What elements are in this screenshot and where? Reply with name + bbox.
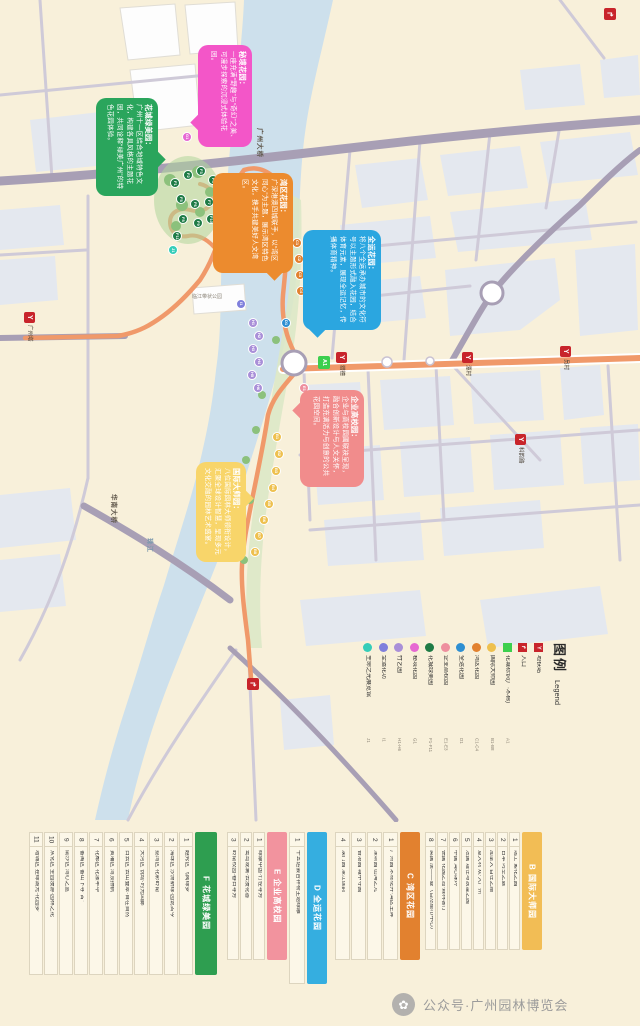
table-row: 2鹭岛观澜·云漫花香 xyxy=(240,832,252,960)
metro-icon: Y xyxy=(336,352,347,363)
legend-title: 图例 Legend xyxy=(550,643,570,775)
table-row: 1广州园 木棉花开·湾区生辉 xyxy=(383,832,398,960)
legend-item-code: J1 xyxy=(366,738,371,743)
legend-item-code: I1 xyxy=(381,738,386,742)
entrance-icon: ↱ xyxy=(604,8,616,20)
legend-item: 湾区花园 C1-C4 xyxy=(469,643,485,775)
callout-title: 全运花园： xyxy=(366,236,376,322)
legend-color-icon xyxy=(487,643,496,652)
legend-item: 竹艺园 H1-H6 xyxy=(391,643,407,775)
legend-item-label: 全运花坊 xyxy=(380,655,386,737)
footer-account-text: 公众号·广州园林博览会 xyxy=(423,995,568,1014)
callout-enterprise-campus-garden: 企业高校园：企业与高校园圃联袂呈现，融合创新设计与人文关怀，打造充满活力与创意的… xyxy=(300,390,364,487)
legend-color-icon: ↱ xyxy=(518,643,527,652)
garden-marker: H4 xyxy=(254,357,264,367)
legend-title-zh: 图例 xyxy=(552,643,567,673)
legend-item-code: A1 xyxy=(505,738,510,744)
legend-item-label: 国际大师园 xyxy=(489,655,495,737)
table-row: 1十五运会吉祥物主题绿雕 xyxy=(289,832,305,984)
legend-item-label: 入口 xyxy=(520,655,526,737)
garden-marker: F9 xyxy=(193,218,203,228)
callout-title: 国际大师园： xyxy=(231,468,241,554)
callout-body: 广深港澳四城联手，以“湾区同心”为主题，展示湾区特色文化，携手共建美好人文湾区。 xyxy=(242,179,278,262)
callout-title: 花城绿美园： xyxy=(143,104,153,188)
expo-map-page: 广州大桥珠江华南大桥临江带状公园 F1F2F3F4F5F6F7F8F9F10F1… xyxy=(0,0,640,1026)
garden-marker: I1 xyxy=(236,299,246,309)
metro-station-label: 员村 xyxy=(562,359,568,370)
table-row: 6黄埔区 湾顶扬帆 xyxy=(104,832,118,975)
table-row: 10从化区 全园漫游·园林之花 xyxy=(44,832,58,975)
table-row: 2深圳园 山海之光 xyxy=(367,832,382,960)
garden-marker: H5 xyxy=(247,370,257,380)
table-row: 1瑞士 繁花之园 xyxy=(509,832,520,950)
garden-marker: B8 xyxy=(250,547,260,557)
entrance-icon: ↱ xyxy=(247,678,259,690)
legend-item-label: 企业高校园 xyxy=(442,655,448,737)
legend-title-en: Legend xyxy=(553,680,562,705)
legend-item: 企业高校园 E1-E3 xyxy=(438,643,454,775)
legend-color-icon xyxy=(363,643,372,652)
table-header: E 企业高校园 xyxy=(267,832,287,960)
table-bay-area-gardens: C 湾区花园 1广州园 木棉花开·湾区生辉2深圳园 山海之光3香港园 城中寻园4… xyxy=(334,832,420,960)
table-green-beauty-gardens: F 花城绿美园 1越秀区 飞阅绿梦2海珠区 沙洲新绿·园说古今3荔湾区 花影岭南… xyxy=(28,832,217,975)
metro-station: Y 员村 xyxy=(560,346,572,370)
legend-item: 全运花园 D1 xyxy=(453,643,469,775)
table-header: B 国际大师园 xyxy=(522,832,542,950)
callout-title: 秘境花园： xyxy=(237,51,247,139)
metro-icon: Y xyxy=(560,346,571,357)
legend-item-code: F1-F11 xyxy=(428,738,433,752)
callout-title: 湾区花园： xyxy=(278,179,288,265)
legend-color-icon xyxy=(456,643,465,652)
legend-item-label: 全运花园 xyxy=(458,655,464,737)
legend-item-label: 花城标识(广·木棉) xyxy=(504,655,510,737)
legend-color-icon xyxy=(472,643,481,652)
legend-item-code: E1-E3 xyxy=(443,738,448,751)
metro-station-label: 广州塔 xyxy=(26,325,32,342)
legend-item: 花城标识(广·木棉) A1 xyxy=(500,643,516,775)
legend-item-label: 竹艺园 xyxy=(396,655,402,737)
a1-landmark-badge: A1 xyxy=(318,356,330,369)
legend-item-code: D1 xyxy=(459,738,464,744)
callout-bay-area-garden: 湾区花园：广深港澳四城联手，以“湾区同心”为主题，展示湾区特色文化，携手共建美好… xyxy=(213,173,293,273)
legend-color-icon xyxy=(394,643,403,652)
garden-marker: H2 xyxy=(254,331,264,341)
garden-marker: F1 xyxy=(170,178,180,188)
table-row: 1绿康中国·竹径寻芳 xyxy=(253,832,265,960)
table-row: 11增城区 挂绿湖光·花园梦 xyxy=(29,832,43,975)
garden-marker: B5 xyxy=(264,499,274,509)
legend-color-icon xyxy=(503,643,512,652)
table-header: D 全运花园 xyxy=(307,832,327,984)
metro-station-label: 猎德 xyxy=(338,365,344,376)
garden-marker: B4 xyxy=(268,483,278,493)
garden-marker: B3 xyxy=(271,466,281,476)
table-row: 9南沙区 湾心之蓝 xyxy=(59,832,73,975)
map-label: 珠江 xyxy=(146,538,156,553)
legend-item-code: C1-C4 xyxy=(474,738,479,751)
legend-color-icon: Y xyxy=(534,643,543,652)
garden-marker: B7 xyxy=(254,531,264,541)
table-international-masters: B 国际大师园 1瑞士 繁花之园2日本 时空之庭3加拿大 自在之路4意大利 欢·… xyxy=(424,832,542,950)
table-row: 4澳门园 濠江莲韵 xyxy=(335,832,350,960)
legend-item-label: 花城绿美园 xyxy=(427,655,433,737)
table-row: 5法国 理性与浪漫之园 xyxy=(461,832,472,950)
wechat-account-logo-icon: ✿ xyxy=(392,993,415,1016)
table-row: 4天河区 悦动·时光回廊 xyxy=(134,832,148,975)
legend-color-icon xyxy=(425,643,434,652)
callout-national-games-garden: 全运花园：将八个全运承办城市的文化符号以主题形式融入花园，结合体育元素，展现全运… xyxy=(303,230,381,330)
map-label: 华南大桥 xyxy=(110,494,120,524)
callout-title: 企业高校园： xyxy=(349,396,359,479)
legend-color-icon xyxy=(379,643,388,652)
legend-item: 花城绿美园 F1-F11 xyxy=(422,643,438,775)
legend-item: 生命之光展览馆 J1 xyxy=(360,643,376,775)
table-header: C 湾区花园 xyxy=(400,832,420,960)
garden-marker: B2 xyxy=(274,449,284,459)
legend-item-label: 湾区花园 xyxy=(473,655,479,737)
table-row: 4意大利 欢·入广州 xyxy=(473,832,484,950)
metro-icon: Y xyxy=(462,352,473,363)
legend-item: 秘境花园 G1 xyxy=(407,643,423,775)
garden-marker: F11 xyxy=(172,231,182,241)
table-row: 7德国 花园之岛·森林客厅 xyxy=(437,832,448,950)
garden-marker: H3 xyxy=(248,344,258,354)
garden-marker: D1 xyxy=(281,318,291,328)
table-header: F 花城绿美园 xyxy=(195,832,217,975)
garden-marker: J1 xyxy=(168,245,178,255)
legend-item: 全运花坊 I1 xyxy=(376,643,392,775)
table-national-games-garden: D 全运花园 1十五运会吉祥物主题绿雕 xyxy=(288,832,327,984)
legend-item: Y 地铁站 xyxy=(531,643,547,775)
garden-marker: H1 xyxy=(248,318,258,328)
metro-station: Y 科韵路 xyxy=(515,434,527,464)
legend-item-code: H1-H6 xyxy=(397,738,402,751)
metro-icon: Y xyxy=(24,312,35,323)
callout-body: 一座充满“野趣”与“奇幻”之美、可漫步探索的沉浸式体验花园。 xyxy=(210,51,236,141)
garden-marker: B1 xyxy=(272,432,282,442)
legend-color-icon xyxy=(441,643,450,652)
callout-international-masters-garden: 国际大师园：八位国际园林大师领衔设计，汇聚全球设计智慧，呈现多元文化交融的园林艺… xyxy=(196,462,246,562)
metro-station: Y 潭村 xyxy=(462,352,474,376)
garden-marker: H6 xyxy=(253,383,263,393)
table-row: 8英国 唐——曼（自然都市中心） xyxy=(425,832,436,950)
table-row: 2日本 时空之庭 xyxy=(497,832,508,950)
garden-marker: B6 xyxy=(259,515,269,525)
table-row: 3荔湾区 花影岭南 xyxy=(149,832,163,975)
legend-item-label: 地铁站 xyxy=(535,655,541,737)
legend-item-code: B1-B8 xyxy=(490,738,495,751)
table-row: 5白云区 云山叠翠·自在自然 xyxy=(119,832,133,975)
callout-body: 八位国际园林大师领衔设计，汇聚全球设计智慧，呈现多元文化交融的园林艺术盛宴。 xyxy=(204,468,230,555)
table-row: 1越秀区 飞阅绿梦 xyxy=(179,832,193,975)
callout-body: 将八个全运承办城市的文化符号以主题形式融入花园，结合体育元素，展现全运记忆，传播… xyxy=(330,236,366,323)
garden-marker: F3 xyxy=(196,166,206,176)
garden-marker: F8 xyxy=(178,214,188,224)
callout-body: 企业与高校园圃联袂呈现，融合创新设计与人文关怀，打造充满活力与创意的公共花园空间… xyxy=(313,396,349,476)
legend-item: 国际大师园 B1-B8 xyxy=(484,643,500,775)
footer: ✿ 公众号·广州园林博览会 xyxy=(392,993,568,1016)
legend-item-code: G1 xyxy=(412,738,417,744)
table-row: 3香港园 城中寻园 xyxy=(351,832,366,960)
legend: 图例 Legend Y 地铁站 ↱ 入口 花城标识(广·木棉 xyxy=(348,643,570,775)
metro-station: Y 猎德 xyxy=(336,352,348,376)
metro-icon: Y xyxy=(515,434,526,445)
metro-station-label: 潭村 xyxy=(464,365,470,376)
table-row: 6中国 湾心珠环 xyxy=(449,832,460,950)
table-row: 2海珠区 沙洲新绿·园说古今 xyxy=(164,832,178,975)
garden-marker: F5 xyxy=(176,194,186,204)
table-enterprise-campus-gardens: E 企业高校园 1绿康中国·竹径寻芳2鹭岛观澜·云漫花香3岭南校园·春日寻芳 xyxy=(226,832,287,960)
legend-items: Y 地铁站 ↱ 入口 花城标识(广·木棉) A1 xyxy=(360,643,546,775)
garden-marker: F6 xyxy=(190,199,200,209)
callout-body: 广州十一区结合地域特色文化，构建各具风格的主题花园，共同诠释“绿美广州”的特色花… xyxy=(107,104,143,189)
legend-item: ↱ 入口 xyxy=(515,643,531,775)
table-row: 3加拿大 自在之路 xyxy=(485,832,496,950)
map-label: 广州大桥 xyxy=(256,128,266,158)
legend-color-icon xyxy=(410,643,419,652)
legend-item-label: 秘境花园 xyxy=(411,655,417,737)
garden-marker: C1 xyxy=(292,238,302,248)
garden-marker: G1 xyxy=(182,132,192,142)
metro-station-label: 科韵路 xyxy=(517,447,523,464)
table-row: 8番禺区 番山下寻“古” xyxy=(74,832,88,975)
callout-mystic-garden: 秘境花园：一座充满“野趣”与“奇幻”之美、可漫步探索的沉浸式体验花园。 xyxy=(198,45,252,147)
callout-green-beauty-garden: 花城绿美园：广州十一区结合地域特色文化，构建各具风格的主题花园，共同诠释“绿美广… xyxy=(96,98,158,196)
table-row: 7花都区 花漾年华 xyxy=(89,832,103,975)
map-label: 临江带状公园 xyxy=(192,293,222,300)
garden-marker: F2 xyxy=(183,170,193,180)
metro-station: Y 广州塔 xyxy=(24,312,36,342)
table-row: 3岭南校园·春日寻芳 xyxy=(227,832,239,960)
legend-item-label: 生命之光展览馆 xyxy=(365,655,371,737)
